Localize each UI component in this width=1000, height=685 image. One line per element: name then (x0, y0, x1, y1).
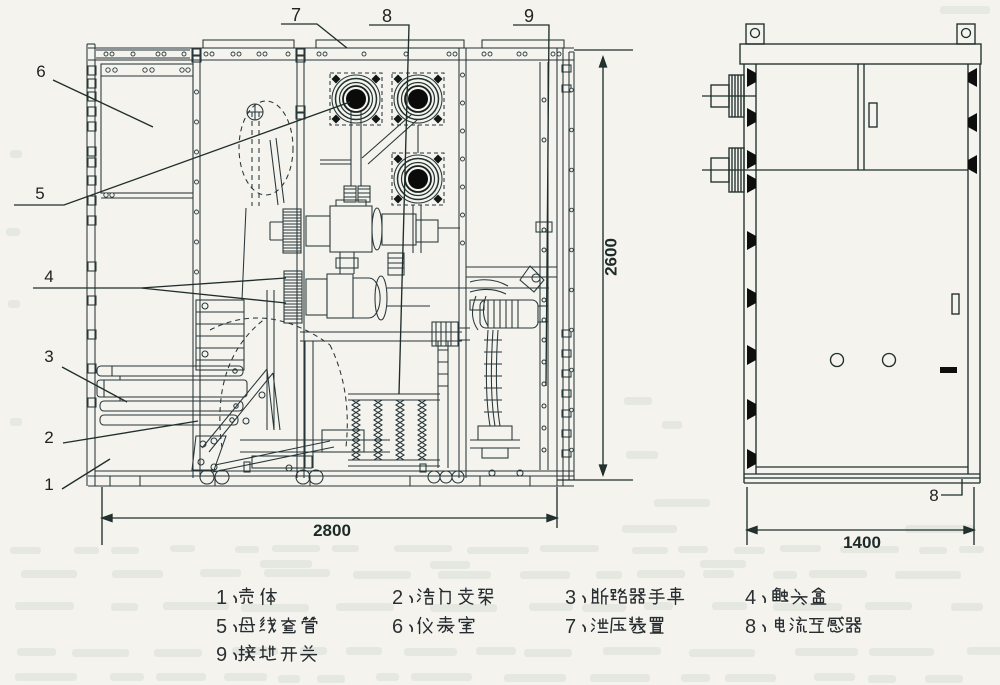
svg-text:3: 3 (44, 347, 53, 366)
svg-text:6: 6 (392, 616, 403, 638)
svg-text:1400: 1400 (843, 533, 881, 552)
svg-text:3: 3 (565, 587, 576, 609)
svg-text:4: 4 (44, 267, 53, 286)
svg-text:6: 6 (36, 62, 45, 81)
svg-text:8: 8 (382, 6, 392, 26)
svg-text:2600: 2600 (601, 238, 620, 276)
svg-text:5: 5 (35, 184, 44, 203)
svg-text:8: 8 (929, 486, 938, 505)
svg-text:9: 9 (524, 6, 534, 26)
svg-text:2800: 2800 (313, 521, 351, 540)
svg-text:4: 4 (745, 587, 756, 609)
svg-text:2: 2 (44, 428, 53, 447)
svg-text:8: 8 (745, 616, 756, 638)
svg-text:5: 5 (216, 616, 227, 638)
svg-text:1: 1 (216, 587, 227, 609)
svg-text:7: 7 (291, 5, 301, 25)
svg-text:9: 9 (216, 644, 227, 666)
svg-text:2: 2 (392, 587, 403, 609)
svg-text:7: 7 (565, 616, 576, 638)
svg-text:1: 1 (44, 475, 53, 494)
